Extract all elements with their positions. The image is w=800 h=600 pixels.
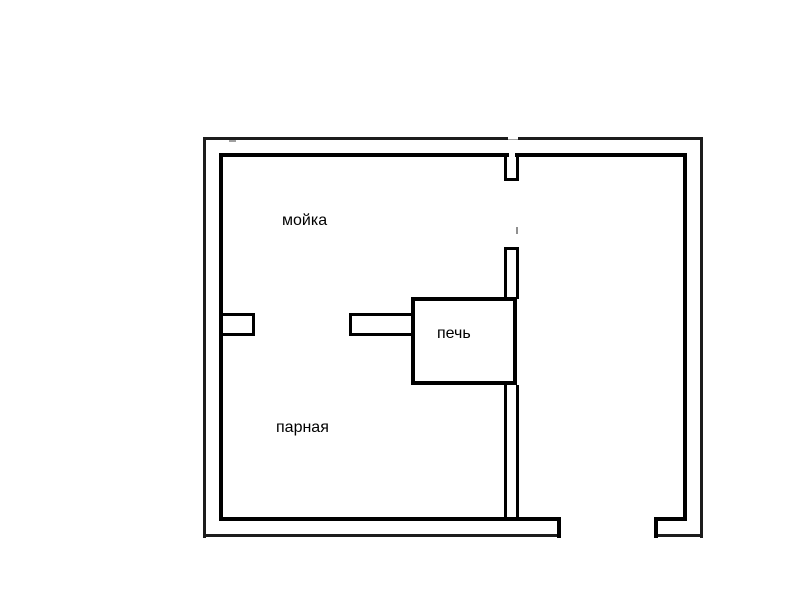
outer-wall-top-tick (229, 140, 236, 142)
outer-wall-top-gap-trace (508, 139, 518, 140)
entrance-door-jamb-right (654, 517, 658, 538)
wall-ledge-top-line (221, 313, 255, 316)
outer-wall-left (203, 137, 206, 538)
inner-wall-bottom-left (219, 517, 561, 521)
washing-room-label: мойка (282, 213, 327, 229)
outer-wall-bottom-left-segment (203, 534, 561, 537)
divider-door-tick (516, 227, 518, 234)
entrance-door-jamb-left (557, 517, 561, 538)
outer-wall-top-right-segment (518, 137, 703, 140)
stove-duct-bottom-line (350, 333, 412, 336)
inner-wall-top-washing-room (219, 153, 509, 157)
inner-wall-right-hallway (683, 153, 687, 521)
stove-label: печь (437, 326, 471, 342)
inner-wall-left (219, 153, 223, 521)
floor-plan-canvas: мойка парная печь (0, 0, 800, 600)
stove-duct-top-line (350, 313, 412, 316)
inner-wall-bottom-right (654, 517, 687, 521)
outer-wall-bottom-right-segment (654, 534, 703, 537)
wall-ledge-end-cap (252, 313, 255, 336)
divider-wall-top-cap (504, 178, 519, 181)
outer-wall-top-left-segment (203, 137, 508, 140)
inner-wall-top-hallway (515, 153, 687, 157)
outer-wall-right (700, 137, 703, 538)
divider-wall-mid-left-line (504, 247, 507, 299)
divider-wall-bottom-left-line (504, 385, 507, 519)
stove-duct-end-cap (349, 313, 352, 336)
wall-ledge-bottom-line (221, 333, 255, 336)
divider-wall-mid-right-line (516, 247, 519, 299)
steam-room-label: парная (276, 420, 329, 436)
divider-wall-bottom-right-line (516, 385, 519, 519)
